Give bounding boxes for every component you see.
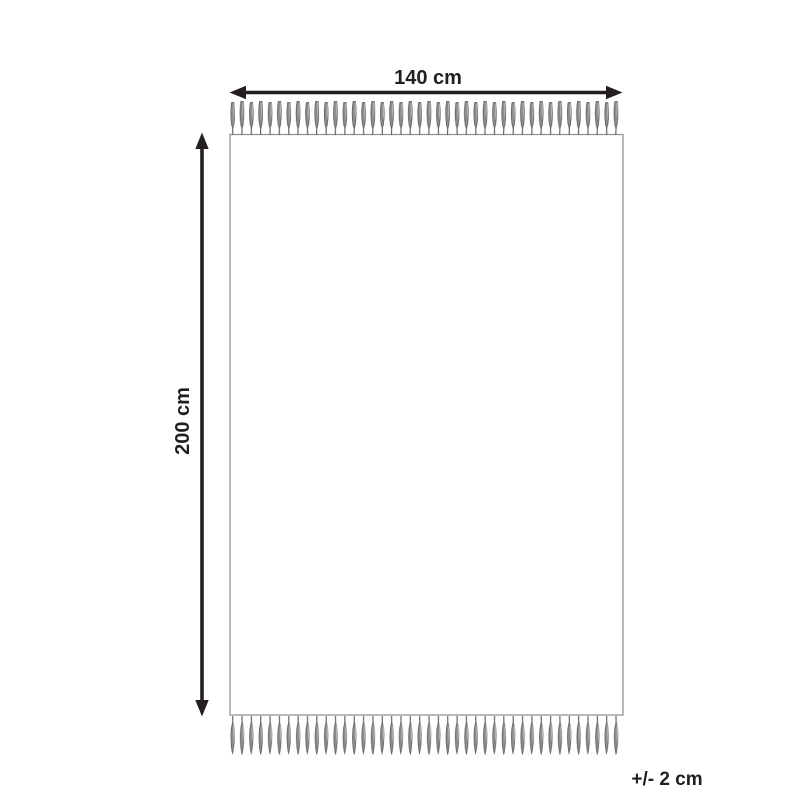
top-fringe [229, 101, 623, 135]
dimension-diagram: 140 cm 200 cm +/- 2 cm [0, 0, 800, 800]
diagram-svg: 140 cm 200 cm +/- 2 cm [0, 0, 800, 800]
height-arrowhead-top [195, 133, 208, 150]
height-arrowhead-bottom [195, 700, 208, 717]
width-arrowhead-left [230, 86, 247, 99]
height-label: 200 cm [172, 387, 194, 455]
tolerance-label: +/- 2 cm [631, 769, 702, 790]
rug-outline [230, 135, 623, 716]
width-label: 140 cm [394, 67, 462, 89]
bottom-fringe [229, 716, 623, 755]
height-dimension-arrow [195, 133, 208, 717]
width-arrowhead-right [606, 86, 623, 99]
